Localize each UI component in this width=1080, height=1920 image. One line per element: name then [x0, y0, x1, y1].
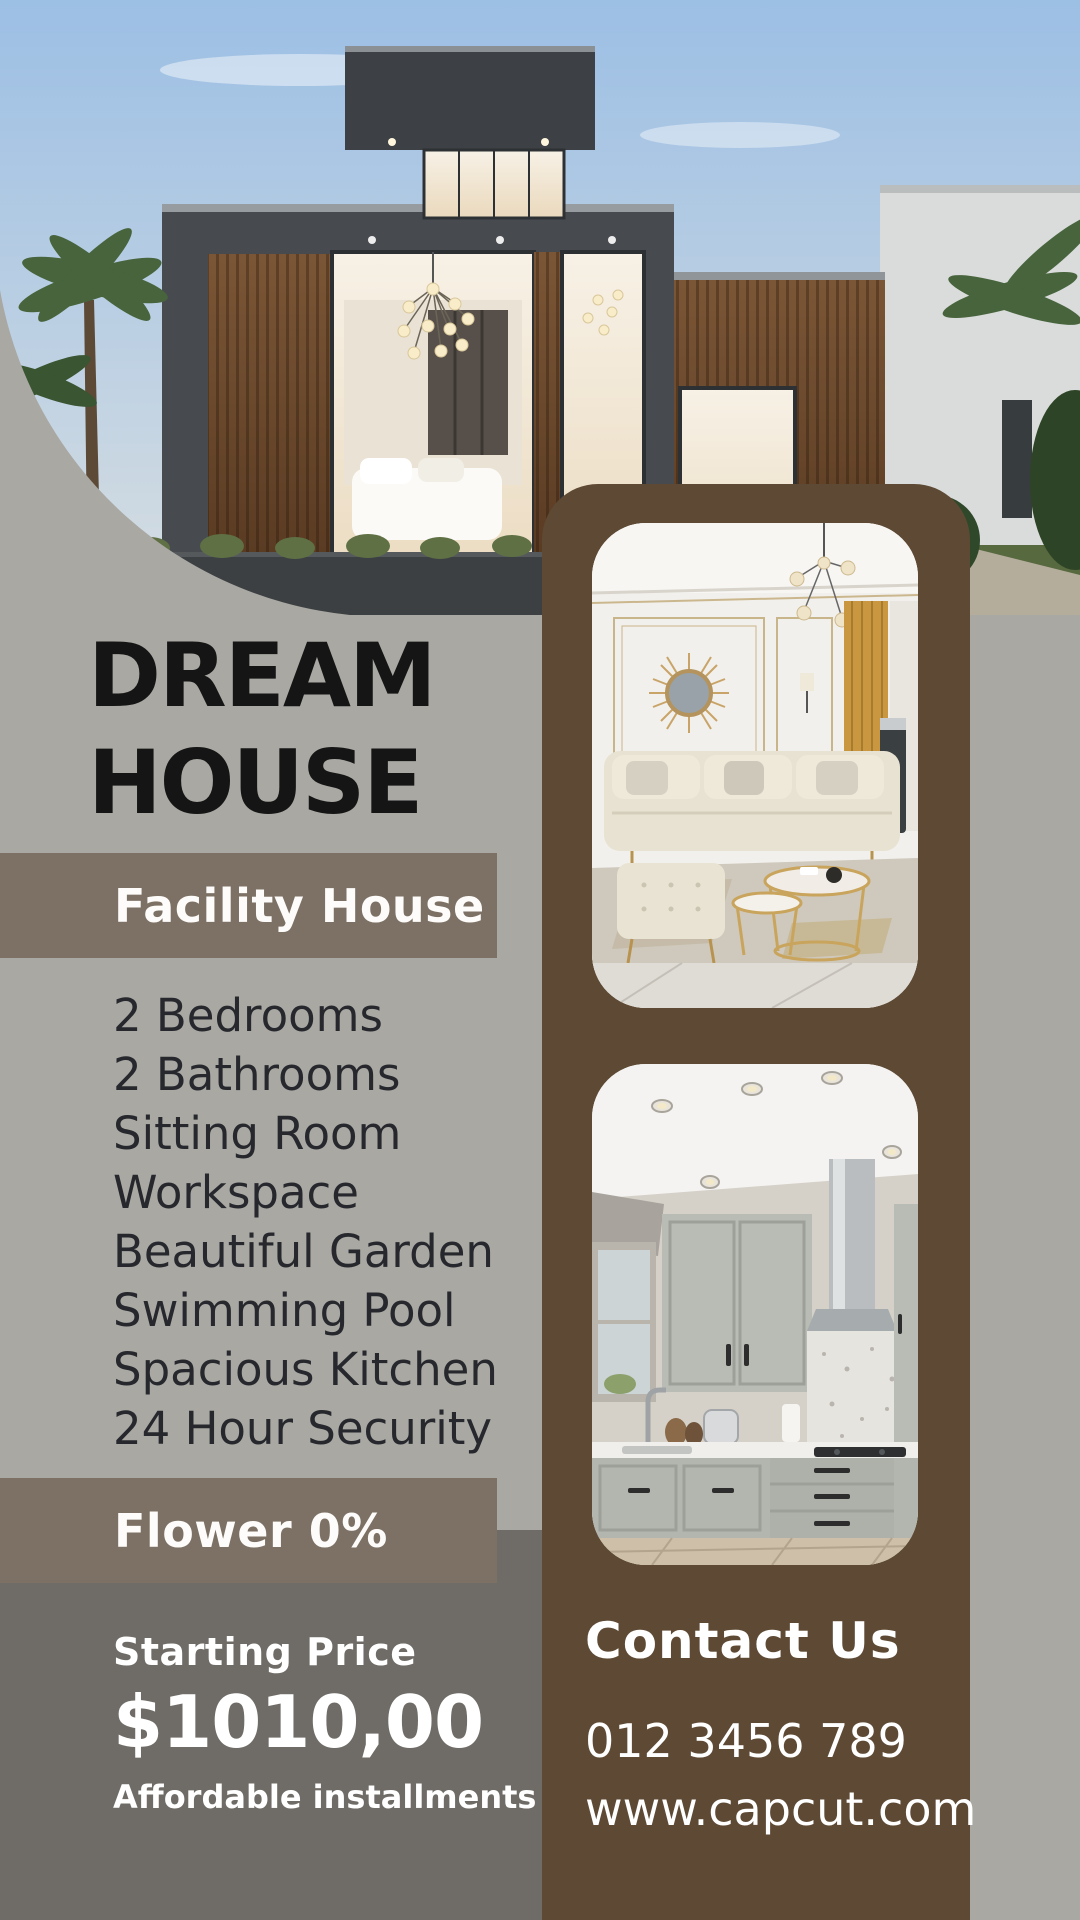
price-value: $1010,00 [113, 1680, 536, 1764]
facility-list-item: Workspace [113, 1163, 553, 1222]
facility-list-item: 2 Bathrooms [113, 1045, 553, 1104]
title-line-2: HOUSE [88, 729, 558, 836]
living-room-illustration [592, 523, 918, 1008]
contact-website: www.capcut.com [585, 1782, 945, 1836]
installments-note: Affordable installments [113, 1778, 536, 1816]
title-line-1: DREAM [88, 622, 558, 729]
flyer: DREAM HOUSE Facility House 2 Bedrooms2 B… [0, 0, 1080, 1920]
detail-panel: Contact Us 012 3456 789 www.capcut.com [542, 484, 970, 1920]
facility-list-item: 2 Bedrooms [113, 986, 553, 1045]
facility-list-item: Swimming Pool [113, 1281, 553, 1340]
facility-header-label: Facility House [114, 879, 485, 933]
starting-price-label: Starting Price [113, 1630, 536, 1674]
facility-list: 2 Bedrooms2 BathroomsSitting RoomWorkspa… [113, 986, 553, 1458]
contact-block: Contact Us 012 3456 789 www.capcut.com [585, 1612, 945, 1836]
price-section: Starting Price $1010,00 Affordable insta… [0, 1530, 542, 1920]
flower-bar: Flower 0% [0, 1478, 497, 1583]
kitchen-photo [592, 1064, 918, 1565]
contact-phone: 012 3456 789 [585, 1714, 945, 1768]
page-title: DREAM HOUSE [88, 622, 558, 836]
facility-header-bar: Facility House [0, 853, 497, 958]
flower-label: Flower 0% [114, 1504, 388, 1558]
facility-list-item: Sitting Room [113, 1104, 553, 1163]
facility-list-item: 24 Hour Security [113, 1399, 553, 1458]
living-room-photo [592, 523, 918, 1008]
contact-heading: Contact Us [585, 1612, 945, 1670]
facility-list-item: Spacious Kitchen [113, 1340, 553, 1399]
facility-list-item: Beautiful Garden [113, 1222, 553, 1281]
kitchen-illustration [592, 1064, 918, 1565]
